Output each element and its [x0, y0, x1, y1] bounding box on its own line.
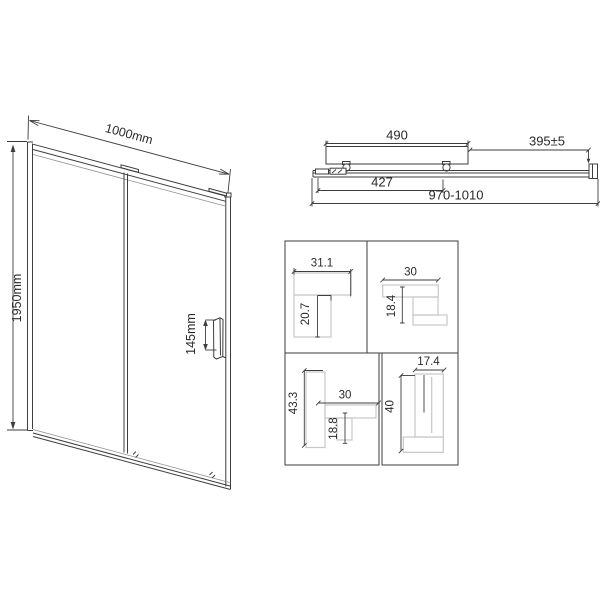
right-wall-profile — [589, 164, 598, 179]
dim-door-height: 1950mm — [7, 142, 28, 431]
extension-line — [28, 116, 29, 140]
top-view: 490 395±5 427 970-1010 — [310, 128, 600, 207]
handle-bar — [214, 318, 224, 359]
arrow-down-icon — [11, 422, 16, 430]
profile2-width-label: 30 — [404, 267, 417, 279]
bottom-rail-lower — [33, 437, 231, 490]
roller-cover-right — [209, 188, 227, 196]
fixed-width-label: 395±5 — [529, 134, 565, 149]
profile-shape — [415, 374, 443, 437]
dim-panel-490: 490 — [324, 128, 470, 147]
door-frame — [28, 142, 232, 490]
top-glass-edge — [33, 155, 226, 207]
panel-width-label: 490 — [386, 128, 408, 143]
glass-width-label: 427 — [371, 175, 393, 190]
profile-step — [318, 296, 332, 301]
dim-door-width: 1000mm — [28, 116, 231, 193]
extension-line — [228, 169, 231, 193]
dim-line — [400, 287, 404, 323]
profile-1: 31.1 20.7 — [292, 258, 353, 338]
profile-2: 30 18.4 — [381, 267, 448, 326]
door-height-label: 1950mm — [10, 274, 24, 323]
door-width-label: 1000mm — [104, 121, 155, 147]
top-rail-plan — [313, 171, 597, 178]
bottom-rail-upper — [33, 433, 230, 486]
profile3-width-label: 30 — [339, 390, 352, 402]
profile4-width-label: 17.4 — [417, 356, 440, 368]
arrow-down-icon — [587, 159, 591, 164]
bottom-glass-edge — [33, 430, 230, 483]
drawing-canvas: 1950mm 1000mm — [0, 0, 600, 600]
arrow-down-icon — [203, 344, 208, 351]
profile-shape — [306, 372, 325, 448]
profile3-inner-label: 18.8 — [328, 417, 340, 439]
dim-handle: 145mm — [184, 313, 217, 355]
profile-shape — [413, 315, 447, 325]
profile-shape — [325, 405, 376, 418]
wall-profile-block — [589, 164, 598, 179]
dim-line — [315, 296, 319, 338]
profile3-height-label: 43.3 — [288, 392, 300, 414]
profile-shape — [294, 273, 351, 295]
bracket-block — [316, 169, 329, 174]
bracket-clamp — [330, 168, 346, 174]
dim-fixed-395: 395±5 — [468, 134, 591, 164]
technical-drawing: 1950mm 1000mm — [0, 0, 600, 600]
left-bracket — [316, 168, 347, 174]
dim-line — [399, 373, 403, 453]
arrow-up-icon — [11, 145, 16, 153]
profile4-height-label: 40 — [385, 400, 397, 413]
profile1-width-label: 31.1 — [311, 258, 333, 270]
profile-sections: 31.1 20.7 30 18.4 43.3 30 — [285, 241, 458, 465]
front-view: 1950mm 1000mm — [7, 116, 231, 490]
overall-range-label: 970-1010 — [429, 188, 484, 203]
profile-shape — [403, 437, 443, 452]
door-handle — [214, 318, 227, 359]
arrow-up-icon — [203, 320, 208, 327]
roller-cover-left — [121, 165, 139, 173]
dim-overall-970-1010: 970-1010 — [310, 178, 600, 207]
top-rail-lower — [33, 150, 226, 202]
profile1-height-label: 20.7 — [300, 303, 312, 325]
handle-height-label: 145mm — [184, 313, 198, 355]
profile-3: 43.3 30 18.8 — [288, 368, 381, 447]
profile-4: 17.4 40 — [385, 356, 447, 453]
profile-shape — [413, 297, 438, 315]
profile2-height-label: 18.4 — [386, 294, 398, 317]
